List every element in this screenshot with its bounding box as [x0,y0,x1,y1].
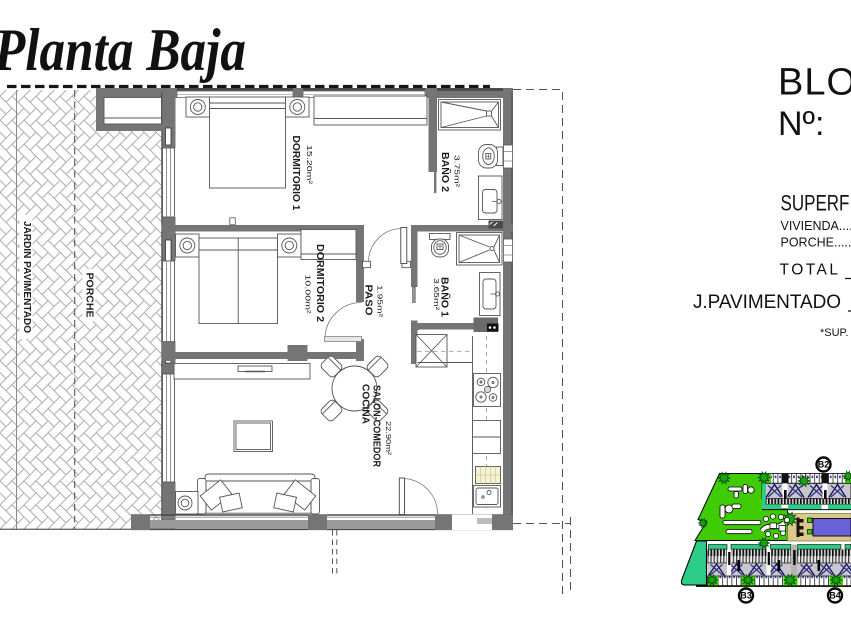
svg-text:3.65m²: 3.65m² [432,278,441,311]
svg-text:VIVIENDA......................: VIVIENDA...................... [781,219,851,233]
svg-text:SUPERFICIE: SUPERFICIE [781,191,851,216]
svg-text:PASO: PASO [362,285,373,316]
svg-text:J.PAVIMENTADO: J.PAVIMENTADO [693,292,841,313]
svg-text:3.75m²: 3.75m² [453,155,462,188]
svg-text:10.00m²: 10.00m² [304,275,313,315]
svg-text:BLOQUE: BLOQUE [778,62,851,104]
svg-text:1.95m²: 1.95m² [376,285,385,318]
svg-text:B3: B3 [740,590,752,600]
svg-text:PORCHE: PORCHE [83,273,94,318]
svg-text:22.90m²: 22.90m² [384,421,393,456]
svg-text:Planta Baja: Planta Baja [0,17,246,83]
svg-text:COCINA: COCINA [359,384,370,424]
svg-text:DORMITORIO 2: DORMITORIO 2 [314,244,325,323]
svg-text:*SUP. CONSTRUIDA: *SUP. CONSTRUIDA [820,327,851,339]
svg-text:B4: B4 [829,590,841,600]
svg-text:PORCHE.......................: PORCHE....................... [781,236,851,250]
svg-text:Nº:: Nº: [778,105,824,143]
svg-text:BAÑO 2: BAÑO 2 [439,152,450,193]
svg-text:TOTAL: TOTAL [780,262,841,279]
svg-text:B2: B2 [818,459,830,469]
svg-text:JARDIN PAVIMENTADO: JARDIN PAVIMENTADO [21,221,32,333]
svg-text:SALON-COMEDOR: SALON-COMEDOR [370,385,381,467]
svg-text:DORMITORIO 1: DORMITORIO 1 [290,136,301,212]
svg-text:15.20m²: 15.20m² [305,145,314,185]
